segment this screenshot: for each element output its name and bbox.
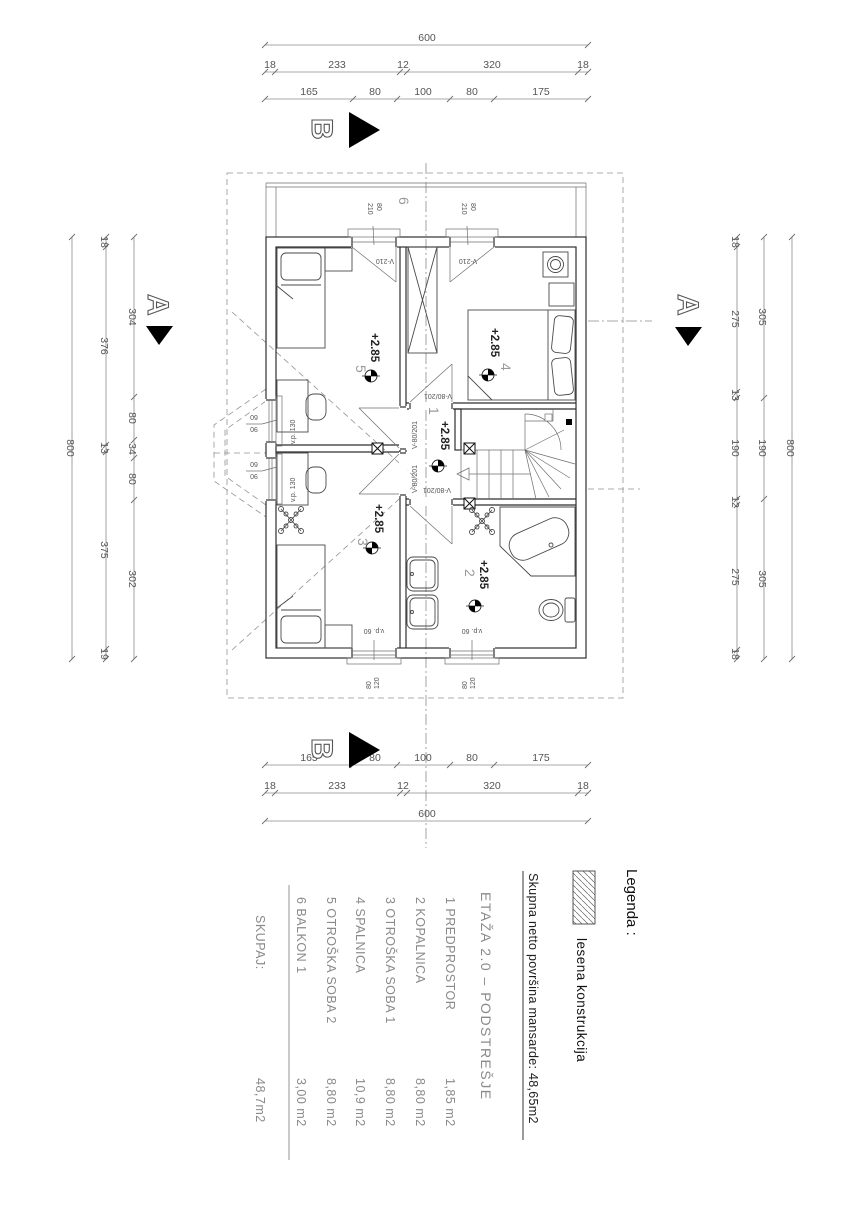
section-arrow-icon bbox=[349, 112, 380, 148]
bathtub bbox=[500, 507, 575, 576]
bed-room3 bbox=[277, 545, 352, 648]
room-number-3: 3 bbox=[355, 538, 371, 546]
sink-2 bbox=[407, 595, 438, 629]
wardrobe bbox=[408, 247, 437, 353]
room-number-4: 4 bbox=[498, 363, 514, 371]
dim-label: 190 bbox=[729, 439, 741, 457]
door-mark-label: V-80/201 bbox=[424, 392, 452, 399]
bed-room5 bbox=[277, 248, 352, 348]
dim-label: 233 bbox=[328, 780, 346, 792]
dim-label: 13 bbox=[729, 389, 741, 401]
dim-label: 18 bbox=[729, 236, 741, 248]
section-arrow-icon bbox=[146, 326, 173, 345]
window-size-label: 90 60 bbox=[246, 413, 262, 432]
door-mark-label: V-80/201 bbox=[412, 421, 419, 449]
window-parapet-label: v.p. 130 bbox=[290, 478, 297, 502]
dimension-bottom: 165 80 100 80 175 18 233 12 320 18 600 bbox=[262, 752, 591, 824]
dim-label: 18 bbox=[98, 236, 110, 248]
level-mark-room3: +2.85 bbox=[372, 504, 384, 534]
dim-label: 100 bbox=[414, 752, 432, 764]
window-size-label: 90 60 bbox=[246, 460, 262, 479]
window-size-label: 120 bbox=[374, 677, 381, 689]
toilet bbox=[539, 598, 575, 622]
window-size-label: 120 bbox=[470, 677, 477, 689]
section-letter-b: B bbox=[305, 738, 338, 760]
window-parapet-label: v.p. 60 bbox=[462, 627, 483, 634]
stair-direction-arrow-icon bbox=[457, 468, 530, 480]
dim-label: 19 bbox=[98, 648, 110, 660]
balcony-door-2 bbox=[446, 229, 498, 282]
table-total-label: SKUPAJ: bbox=[253, 915, 267, 970]
dim-label: 175 bbox=[532, 86, 550, 98]
window-size-label: 80 bbox=[366, 681, 373, 689]
dim-label: 13 bbox=[98, 442, 110, 454]
window-parapet-label: v.p. 60 bbox=[364, 627, 385, 634]
dim-label: 18 bbox=[264, 59, 276, 71]
dim-label: 275 bbox=[729, 568, 741, 586]
dim-label: 18 bbox=[264, 780, 276, 792]
dim-label: 800 bbox=[784, 439, 796, 457]
dim-label: 233 bbox=[328, 59, 346, 71]
dim-label: 800 bbox=[64, 439, 76, 457]
table-total-value: 48,7m2 bbox=[253, 1078, 267, 1123]
door-size-label: 210 bbox=[460, 203, 467, 215]
room-number-2: 2 bbox=[462, 569, 478, 577]
floor-plan-sheet: 600 18 233 12 320 18 165 80 100 80 175 1… bbox=[0, 0, 865, 1200]
room-row-name: 6 BALKON 1 bbox=[294, 897, 308, 974]
dim-label: 80 bbox=[126, 412, 138, 424]
level-mark-room5: +2.85 bbox=[368, 333, 380, 363]
svg-text:60: 60 bbox=[250, 413, 258, 420]
room-number-5: 5 bbox=[353, 365, 369, 373]
room-row-name: 4 SPALNICA bbox=[353, 897, 367, 973]
area-summary: Skupna netto površina mansarde: 48,65m2 bbox=[523, 871, 540, 1140]
dimension-right: 18 275 13 190 12 275 18 305 190 305 800 bbox=[729, 234, 796, 662]
dim-label: 190 bbox=[756, 439, 768, 457]
chair bbox=[306, 394, 326, 420]
room-row-area: 8,80 m2 bbox=[383, 1078, 397, 1127]
svg-text:60: 60 bbox=[250, 460, 258, 467]
section-arrow-icon bbox=[675, 327, 702, 346]
dim-label: 320 bbox=[483, 780, 501, 792]
dim-label: 320 bbox=[483, 59, 501, 71]
level-mark-room1: +2.85 bbox=[438, 421, 450, 451]
post-solid bbox=[566, 419, 572, 425]
legend-title: Legenda : bbox=[623, 869, 640, 936]
dim-label: 376 bbox=[98, 337, 110, 355]
section-letter-b: B bbox=[305, 118, 338, 140]
room-row-area: 1,85 m2 bbox=[443, 1078, 457, 1127]
dim-label: 305 bbox=[756, 308, 768, 326]
desk-room3 bbox=[277, 453, 326, 505]
dim-label: 600 bbox=[418, 32, 436, 44]
section-marker-b-top: B bbox=[305, 112, 380, 148]
door-mark-label: V-80/201 bbox=[423, 486, 451, 493]
double-bed bbox=[468, 310, 575, 400]
door-mark-label: V-80/201 bbox=[412, 465, 419, 493]
dim-label: 375 bbox=[98, 541, 110, 559]
dim-label: 600 bbox=[418, 808, 436, 820]
dim-label: 18 bbox=[729, 648, 741, 660]
floor-plan-drawing: 600 18 233 12 320 18 165 80 100 80 175 1… bbox=[0, 0, 865, 1200]
room-row-area: 8,80 m2 bbox=[413, 1078, 427, 1127]
net-area-text: Skupna netto površina mansarde: 48,65m2 bbox=[526, 873, 540, 1124]
door-mark-label: V-210 bbox=[459, 257, 477, 264]
nightstand bbox=[549, 283, 574, 306]
desk-room5 bbox=[277, 380, 326, 432]
section-letter-a: A bbox=[671, 294, 704, 316]
section-marker-a-right: A bbox=[671, 294, 704, 346]
bedside-shelf bbox=[325, 625, 352, 648]
dim-label: 275 bbox=[729, 310, 741, 328]
svg-text:90: 90 bbox=[250, 425, 258, 432]
dim-label: 12 bbox=[729, 496, 741, 508]
plant-icon bbox=[470, 508, 495, 535]
dim-label: 305 bbox=[756, 570, 768, 588]
dim-label: 100 bbox=[414, 86, 432, 98]
dim-label: 18 bbox=[577, 780, 589, 792]
dim-label: 80 bbox=[126, 473, 138, 485]
window-parapet-label: v.p. 130 bbox=[290, 420, 297, 444]
dim-label: 80 bbox=[369, 86, 381, 98]
dim-label: 12 bbox=[397, 780, 409, 792]
section-letter-a: A bbox=[141, 294, 174, 316]
dim-label: 80 bbox=[466, 86, 478, 98]
dim-label: 80 bbox=[466, 752, 478, 764]
dim-label: 18 bbox=[577, 59, 589, 71]
level-symbol-icon bbox=[479, 369, 497, 381]
room-row-name: 2 KOPALNICA bbox=[413, 897, 427, 984]
dim-label: 34 bbox=[126, 443, 138, 455]
legend-item-label: lesena konstrukcija bbox=[574, 938, 589, 1062]
dim-label: 304 bbox=[126, 308, 138, 326]
level-symbol-icon bbox=[466, 600, 484, 612]
bedside-shelf bbox=[325, 248, 352, 271]
dimension-top: 600 18 233 12 320 18 165 80 100 80 175 bbox=[262, 32, 591, 102]
room-number-1: 1 bbox=[426, 407, 442, 415]
sink-1 bbox=[407, 557, 438, 591]
dim-label: 302 bbox=[126, 570, 138, 588]
legend-hatch-swatch bbox=[573, 871, 595, 924]
section-marker-a-left: A bbox=[141, 294, 174, 345]
room-row-area: 8,80 m2 bbox=[324, 1078, 338, 1127]
dim-label: 12 bbox=[397, 59, 409, 71]
legend: Legenda : lesena konstrukcija bbox=[573, 869, 640, 1062]
door-size-label: 80 bbox=[375, 203, 382, 211]
room-row-name: 1 PREDPROSTOR bbox=[443, 897, 457, 1010]
room-row-area: 10,9 m2 bbox=[353, 1078, 367, 1127]
room-row-name: 5 OTROŠKA SOBA 2 bbox=[324, 897, 339, 1024]
dim-label: 165 bbox=[300, 86, 318, 98]
level-mark-room4: +2.85 bbox=[488, 328, 500, 358]
door-size-label: 210 bbox=[366, 203, 373, 215]
balcony-door-1 bbox=[348, 229, 400, 282]
dimension-left: 800 18 376 13 375 19 304 80 34 80 302 bbox=[64, 234, 138, 662]
plant-icon bbox=[279, 507, 304, 534]
table-heading: ETAŽA 2.0 – PODSTREŠJE bbox=[478, 892, 494, 1101]
level-symbol-icon bbox=[429, 460, 447, 472]
room-table: ETAŽA 2.0 – PODSTREŠJE 1 PREDPROSTOR 1,8… bbox=[253, 885, 494, 1160]
chair bbox=[306, 467, 326, 493]
room-row-area: 3,00 m2 bbox=[294, 1078, 308, 1127]
door-mark-label: V-210 bbox=[376, 257, 394, 264]
room-number-6: 6 bbox=[396, 197, 412, 205]
washing-column bbox=[543, 252, 568, 277]
window-size-label: 80 bbox=[462, 681, 469, 689]
room-row-name: 3 OTROŠKA SOBA 1 bbox=[383, 897, 398, 1024]
dim-label: 175 bbox=[532, 752, 550, 764]
door-size-label: 80 bbox=[469, 203, 476, 211]
svg-text:90: 90 bbox=[250, 472, 258, 479]
